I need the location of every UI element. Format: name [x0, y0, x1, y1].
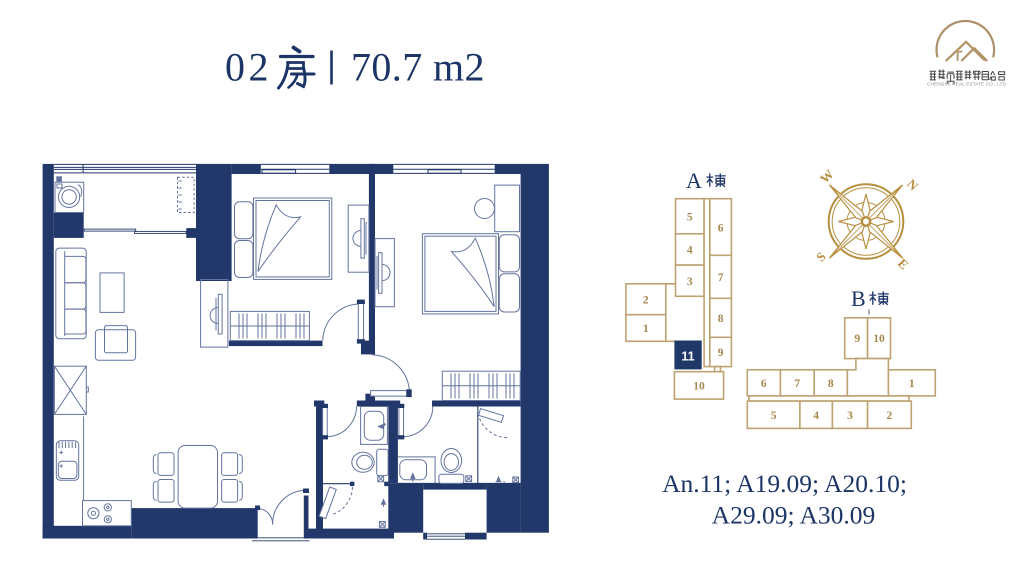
svg-text:7: 7 — [794, 378, 800, 390]
svg-text:N: N — [904, 176, 922, 194]
svg-text:1: 1 — [909, 378, 915, 390]
svg-text:6: 6 — [761, 378, 767, 390]
svg-text:B: B — [851, 286, 866, 311]
svg-text:A29.09; A30.09: A29.09; A30.09 — [712, 501, 876, 530]
svg-text:9: 9 — [718, 347, 724, 359]
svg-text:4: 4 — [813, 410, 819, 422]
svg-text:8: 8 — [828, 378, 834, 390]
svg-text:4: 4 — [687, 245, 693, 257]
svg-text:A: A — [686, 168, 702, 193]
svg-text:8: 8 — [718, 313, 724, 325]
svg-text:W: W — [817, 166, 837, 186]
svg-text:5: 5 — [771, 410, 777, 422]
svg-text:10: 10 — [693, 381, 705, 393]
svg-text:02: 02 — [225, 45, 272, 90]
svg-text:11: 11 — [681, 350, 694, 364]
svg-text:3: 3 — [687, 276, 693, 288]
svg-text:70.7 m2: 70.7 m2 — [351, 45, 485, 90]
svg-text:An.11; A19.09; A20.10;: An.11; A19.09; A20.10; — [662, 469, 907, 498]
svg-text:10: 10 — [873, 333, 885, 345]
svg-text:E: E — [895, 255, 912, 272]
svg-text:2: 2 — [643, 294, 649, 306]
svg-text:1: 1 — [643, 323, 649, 335]
svg-text:7: 7 — [718, 272, 724, 284]
svg-text:CHENGYE REAL ESTATE CO., LTD: CHENGYE REAL ESTATE CO., LTD — [927, 82, 1006, 87]
svg-text:3: 3 — [847, 410, 853, 422]
svg-text:2: 2 — [887, 410, 893, 422]
svg-text:S: S — [813, 249, 829, 265]
svg-text:5: 5 — [687, 212, 693, 224]
svg-text:6: 6 — [718, 223, 724, 235]
svg-text:9: 9 — [854, 333, 860, 345]
